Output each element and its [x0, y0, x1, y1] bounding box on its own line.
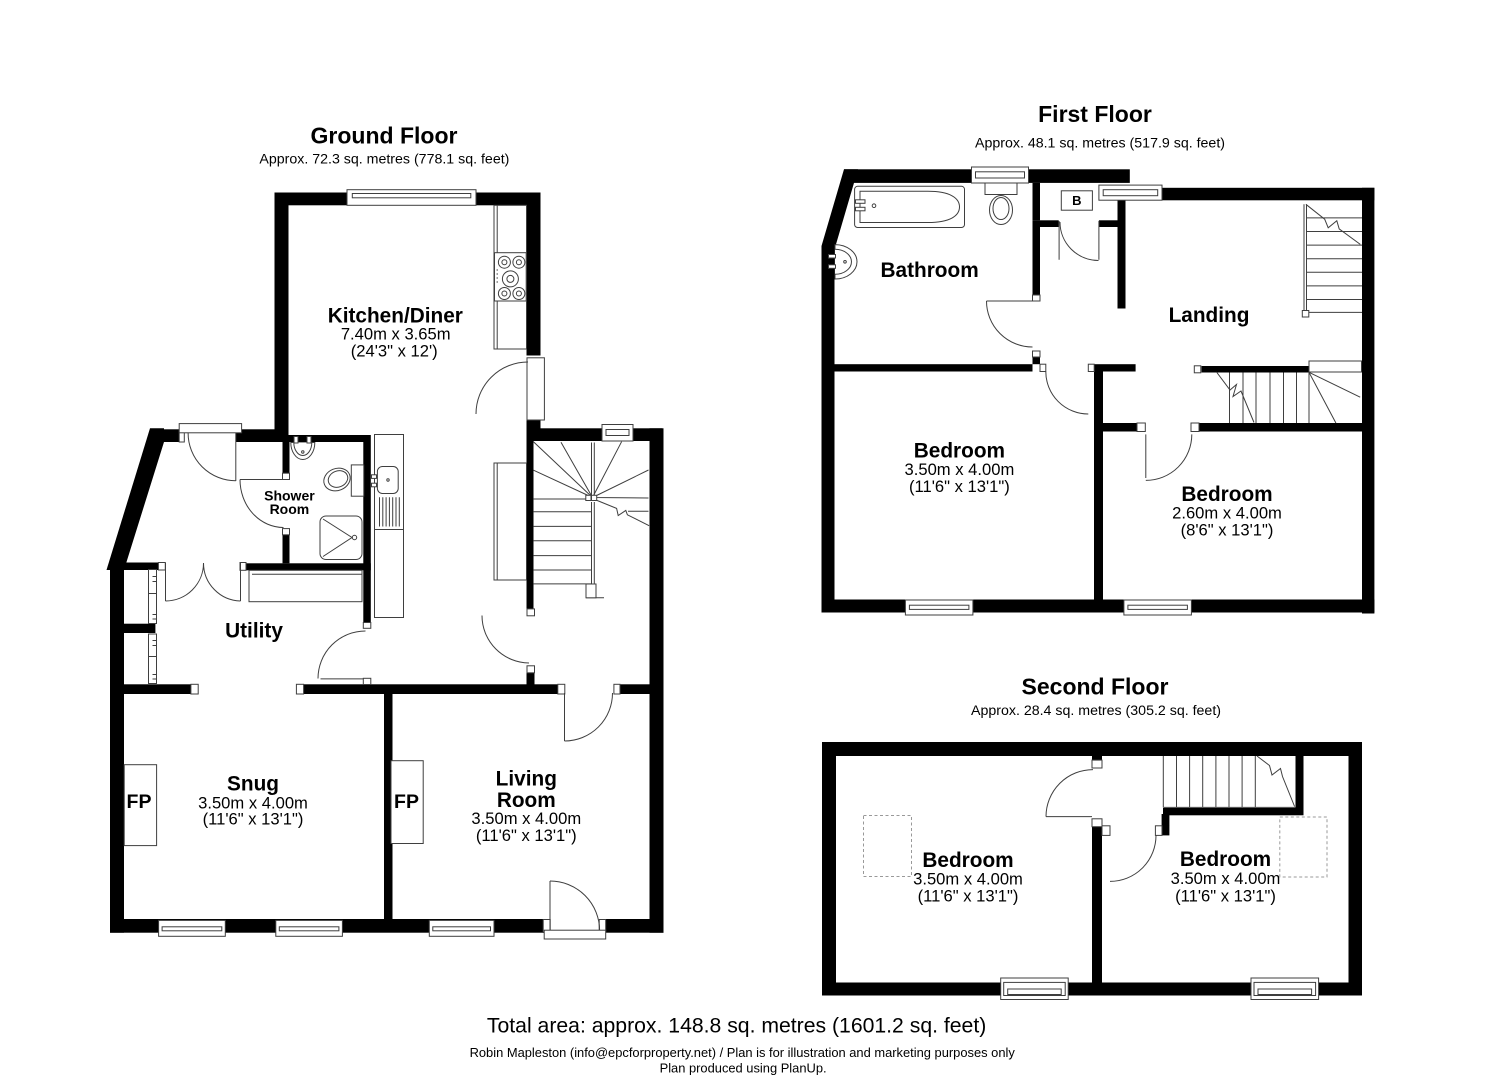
svg-text:Approx. 48.1 sq. metres (517.9: Approx. 48.1 sq. metres (517.9 sq. feet) [975, 136, 1225, 152]
svg-text:Snug: Snug [227, 773, 279, 796]
svg-text:Ground Floor: Ground Floor [311, 122, 458, 148]
svg-text:(11'6" x 13'1"): (11'6" x 13'1") [203, 810, 304, 829]
svg-text:Robin Mapleston (info@epcforpr: Robin Mapleston (info@epcforproperty.net… [470, 1045, 1016, 1060]
svg-text:(8'6" x 13'1"): (8'6" x 13'1") [1181, 521, 1274, 540]
svg-text:B: B [1072, 193, 1081, 208]
svg-text:Bathroom: Bathroom [880, 259, 978, 282]
svg-text:(11'6" x 13'1"): (11'6" x 13'1") [909, 477, 1010, 496]
svg-text:Total area: approx. 148.8 sq.: Total area: approx. 148.8 sq. metres (16… [487, 1015, 986, 1038]
svg-text:(11'6" x 13'1"): (11'6" x 13'1") [918, 887, 1019, 906]
svg-text:7.40m x 3.65m: 7.40m x 3.65m [341, 324, 451, 343]
svg-text:FP: FP [127, 791, 152, 813]
svg-text:FP: FP [394, 791, 419, 813]
svg-text:(24'3" x 12'): (24'3" x 12') [351, 342, 438, 361]
svg-text:Bedroom: Bedroom [1180, 848, 1271, 871]
svg-text:Room: Room [270, 501, 310, 517]
svg-text:(11'6" x 13'1"): (11'6" x 13'1") [1175, 887, 1276, 906]
svg-text:Approx. 28.4 sq. metres (305.2: Approx. 28.4 sq. metres (305.2 sq. feet) [971, 703, 1221, 719]
svg-text:Approx. 72.3 sq. metres (778.1: Approx. 72.3 sq. metres (778.1 sq. feet) [259, 152, 509, 168]
svg-text:Second Floor: Second Floor [1022, 673, 1169, 699]
svg-text:Living: Living [496, 768, 557, 791]
svg-text:(11'6" x 13'1"): (11'6" x 13'1") [476, 826, 577, 845]
svg-text:First Floor: First Floor [1038, 101, 1152, 127]
svg-text:Landing: Landing [1169, 304, 1250, 327]
svg-text:Utility: Utility [225, 619, 283, 642]
svg-text:Plan produced using PlanUp.: Plan produced using PlanUp. [660, 1061, 827, 1076]
svg-text:3.50m x 4.00m: 3.50m x 4.00m [1171, 869, 1281, 888]
